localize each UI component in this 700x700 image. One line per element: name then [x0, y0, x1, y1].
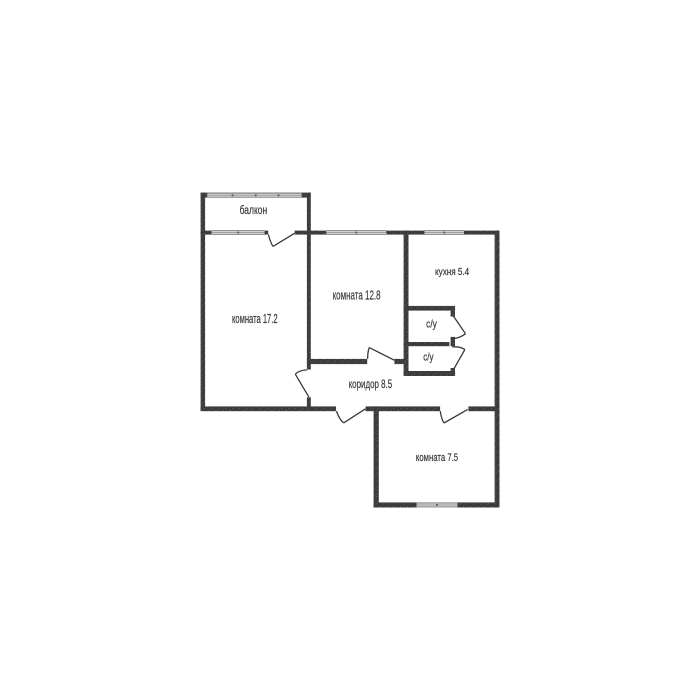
svg-text:комната 12.8: комната 12.8 — [333, 288, 381, 303]
svg-text:с/у: с/у — [426, 318, 437, 330]
svg-text:комната 7.5: комната 7.5 — [416, 452, 458, 464]
svg-text:комната 17.2: комната 17.2 — [232, 312, 278, 326]
svg-text:коридор 8.5: коридор 8.5 — [349, 377, 393, 391]
svg-text:с/у: с/у — [423, 352, 434, 364]
svg-text:кухня 5.4: кухня 5.4 — [435, 267, 470, 278]
svg-text:балкон: балкон — [240, 205, 268, 217]
